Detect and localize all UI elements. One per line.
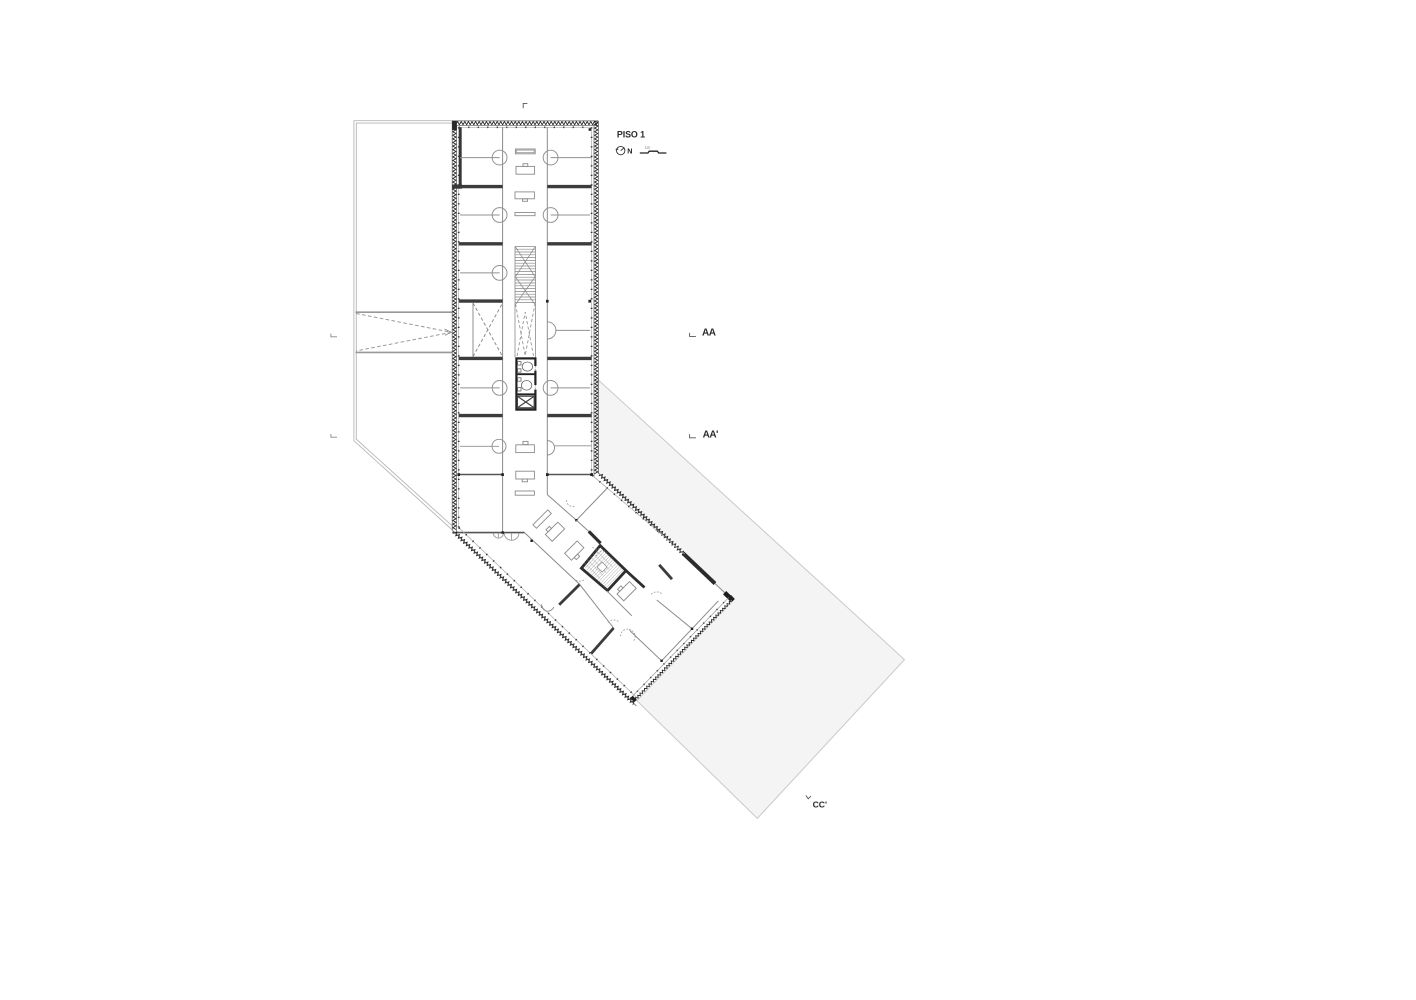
svg-text:CC': CC' [813, 800, 827, 810]
svg-text:1m: 1m [645, 145, 651, 150]
svg-text:PISO 1: PISO 1 [617, 129, 645, 139]
svg-text:AA': AA' [703, 430, 718, 441]
svg-text:AA: AA [702, 328, 716, 339]
svg-text:N: N [627, 146, 632, 155]
